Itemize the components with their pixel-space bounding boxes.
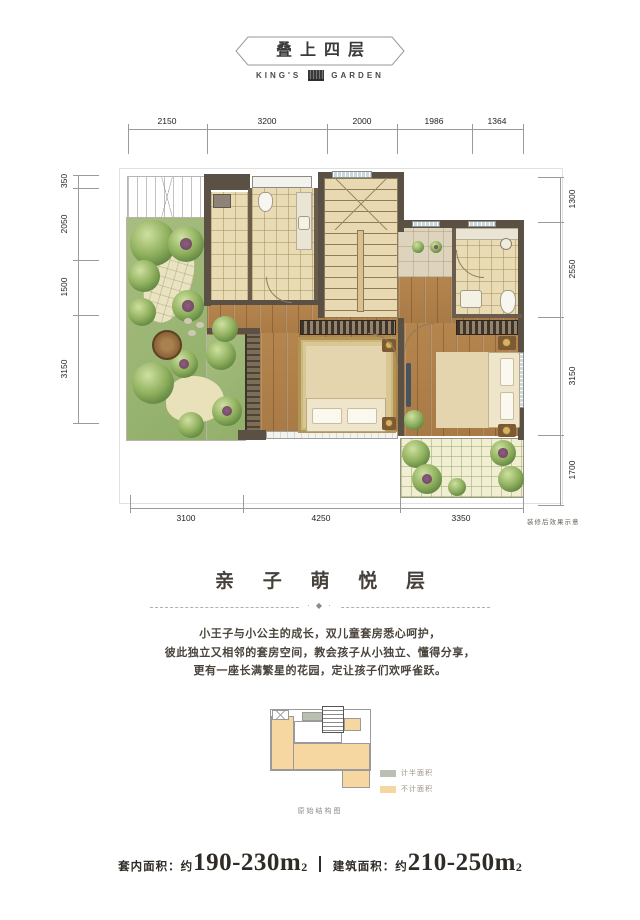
plant-icon bbox=[212, 316, 238, 342]
indoor-area-label: 套内面积：约 bbox=[118, 858, 193, 874]
dim-top-4: 1986 bbox=[404, 116, 464, 126]
wall-segment bbox=[518, 220, 524, 318]
dimension-tick bbox=[538, 435, 564, 436]
dim-right-3: 3150 bbox=[567, 356, 577, 396]
dimension-tick bbox=[523, 124, 524, 154]
dimension-tick bbox=[538, 317, 564, 318]
tree-icon bbox=[128, 260, 160, 292]
window bbox=[332, 171, 372, 178]
inset-skylight bbox=[272, 710, 289, 720]
paragraph-line: 彼此独立又相邻的套房空间，教会孩子从小独立、懂得分享， bbox=[0, 644, 640, 663]
dim-bottom-1: 3100 bbox=[156, 513, 216, 523]
render-note: 装修后效果示意 bbox=[527, 516, 580, 526]
dim-top-1: 2150 bbox=[137, 116, 197, 126]
dimension-tick bbox=[73, 260, 99, 261]
cabinet bbox=[252, 176, 312, 188]
indoor-area-sup: 2 bbox=[301, 860, 307, 875]
plant-icon bbox=[448, 478, 466, 496]
dim-top-3: 2000 bbox=[332, 116, 392, 126]
pillow bbox=[500, 392, 514, 420]
inset-area-excluded bbox=[342, 770, 370, 788]
dimension-tick bbox=[538, 177, 564, 178]
wardrobe bbox=[300, 320, 396, 335]
wardrobe bbox=[456, 320, 518, 335]
wall-segment bbox=[238, 430, 266, 440]
area-summary: 套内面积：约 190-230m 2 建筑面积：约 210-250m 2 bbox=[0, 849, 640, 877]
closet bbox=[213, 194, 231, 208]
tree-icon bbox=[132, 362, 174, 404]
legend: 计半面积 不计面积 bbox=[380, 768, 433, 794]
dimension-tick bbox=[207, 124, 208, 154]
dim-left-1: 350 bbox=[59, 161, 69, 201]
section-divider: · ◆ · bbox=[150, 607, 490, 608]
brand-right-text: GARDEN bbox=[331, 71, 384, 80]
shower-head-icon bbox=[500, 238, 512, 250]
plant-icon bbox=[412, 464, 442, 494]
legend-swatch-excluded bbox=[380, 786, 396, 793]
dimension-tick bbox=[130, 495, 131, 513]
dimension-tick bbox=[538, 222, 564, 223]
stepping-stone bbox=[188, 330, 196, 336]
tree-icon bbox=[168, 226, 204, 262]
dim-top-5: 1364 bbox=[467, 116, 527, 126]
section-paragraph: 小王子与小公主的成长，双儿童套房悉心呵护， 彼此独立又相邻的套房空间，教会孩子从… bbox=[0, 625, 640, 681]
kings-garden-emblem-icon bbox=[308, 70, 324, 81]
plant-icon bbox=[430, 241, 442, 253]
bathroom-1-floor bbox=[211, 192, 248, 303]
gross-area-value: 210-250m bbox=[408, 849, 516, 877]
pillow bbox=[347, 408, 377, 424]
dimension-tick bbox=[472, 124, 473, 154]
dim-left-3: 1500 bbox=[59, 267, 69, 307]
plant-icon bbox=[412, 241, 424, 253]
dim-line-left bbox=[78, 175, 79, 423]
dim-right-4: 1700 bbox=[567, 450, 577, 490]
dim-line-top bbox=[128, 129, 523, 130]
inset-area-excluded bbox=[344, 718, 361, 731]
dim-right-2: 2550 bbox=[567, 249, 577, 289]
paragraph-line: 小王子与小公主的成长，双儿童套房悉心呵护， bbox=[0, 625, 640, 644]
dimension-tick bbox=[327, 124, 328, 154]
inset-stairs bbox=[322, 706, 344, 733]
divider-ornament-icon: · ◆ · bbox=[299, 601, 341, 610]
nightstand-lamp-icon bbox=[503, 427, 510, 434]
plant-icon bbox=[404, 410, 424, 430]
dimension-tick bbox=[73, 175, 99, 176]
section-title: 亲 子 萌 悦 层 bbox=[0, 566, 640, 593]
floorplan-poster: 叠上四层 KING'S GARDEN 2150 3200 2000 1986 1… bbox=[0, 0, 640, 920]
dimension-tick bbox=[397, 124, 398, 154]
footer-divider bbox=[319, 856, 321, 872]
inset-area-excluded bbox=[293, 743, 370, 770]
dim-right-1: 1300 bbox=[567, 179, 577, 219]
brand-row: KING'S GARDEN bbox=[0, 70, 640, 81]
pillow bbox=[312, 408, 342, 424]
hedge-screen bbox=[245, 333, 260, 440]
wall-segment bbox=[452, 314, 522, 318]
brand-left-text: KING'S bbox=[256, 71, 301, 80]
inset-caption: 原始结构图 bbox=[262, 806, 378, 816]
nightstand-lamp-icon bbox=[386, 420, 392, 426]
gross-area-label: 建筑面积：约 bbox=[333, 858, 408, 874]
dim-top-2: 3200 bbox=[237, 116, 297, 126]
sink-icon bbox=[298, 216, 310, 230]
dimension-tick bbox=[243, 495, 244, 513]
wall-segment bbox=[204, 174, 250, 190]
plant-icon bbox=[490, 440, 516, 466]
tree-icon bbox=[206, 340, 236, 370]
sink-icon bbox=[460, 290, 482, 308]
indoor-area-value: 190-230m bbox=[193, 849, 301, 877]
dim-line-bottom bbox=[130, 508, 523, 509]
wall-segment bbox=[318, 172, 324, 318]
stair-landing-line bbox=[324, 178, 398, 230]
dim-bottom-2: 4250 bbox=[291, 513, 351, 523]
toilet-icon bbox=[500, 290, 516, 314]
window bbox=[468, 221, 496, 227]
stepping-stone bbox=[184, 318, 192, 324]
bench bbox=[406, 363, 411, 407]
stepping-stone bbox=[196, 322, 204, 328]
paragraph-line: 更有一座长满繁星的花园，定让孩子们欢呼雀跃。 bbox=[0, 662, 640, 681]
legend-swatch-half bbox=[380, 770, 396, 777]
dim-bottom-3: 3350 bbox=[431, 513, 491, 523]
legend-label-excluded: 不计面积 bbox=[401, 784, 433, 794]
tree-icon bbox=[178, 412, 204, 438]
legend-label-half: 计半面积 bbox=[401, 768, 433, 778]
dim-left-2: 2050 bbox=[59, 204, 69, 244]
gross-area-sup: 2 bbox=[516, 860, 522, 875]
dimension-tick bbox=[538, 505, 564, 506]
toilet-icon bbox=[258, 192, 273, 212]
dimension-tick bbox=[128, 124, 129, 154]
window bbox=[412, 221, 440, 227]
dimension-tick bbox=[73, 315, 99, 316]
wall-segment bbox=[204, 300, 324, 305]
stair-rail bbox=[357, 230, 364, 312]
hallway-floor bbox=[398, 228, 455, 277]
nightstand-lamp-icon bbox=[503, 339, 510, 346]
garden-table-icon bbox=[152, 330, 182, 360]
bathroom-3-counter bbox=[455, 228, 522, 240]
dimension-tick bbox=[73, 423, 99, 424]
plant-icon bbox=[498, 466, 524, 492]
dimension-tick bbox=[73, 188, 99, 189]
inset-area-excluded bbox=[271, 716, 294, 770]
skylight-panel bbox=[127, 176, 207, 218]
dim-left-4: 3150 bbox=[59, 349, 69, 389]
pillow bbox=[500, 358, 514, 386]
bed-2-blanket bbox=[436, 352, 489, 428]
wall-segment bbox=[248, 188, 252, 303]
wall-segment bbox=[204, 176, 211, 306]
tree-icon bbox=[212, 396, 242, 426]
page-title: 叠上四层 bbox=[235, 36, 405, 66]
wall-segment bbox=[452, 228, 456, 318]
tree-icon bbox=[128, 298, 156, 326]
dim-line-right bbox=[560, 177, 561, 505]
